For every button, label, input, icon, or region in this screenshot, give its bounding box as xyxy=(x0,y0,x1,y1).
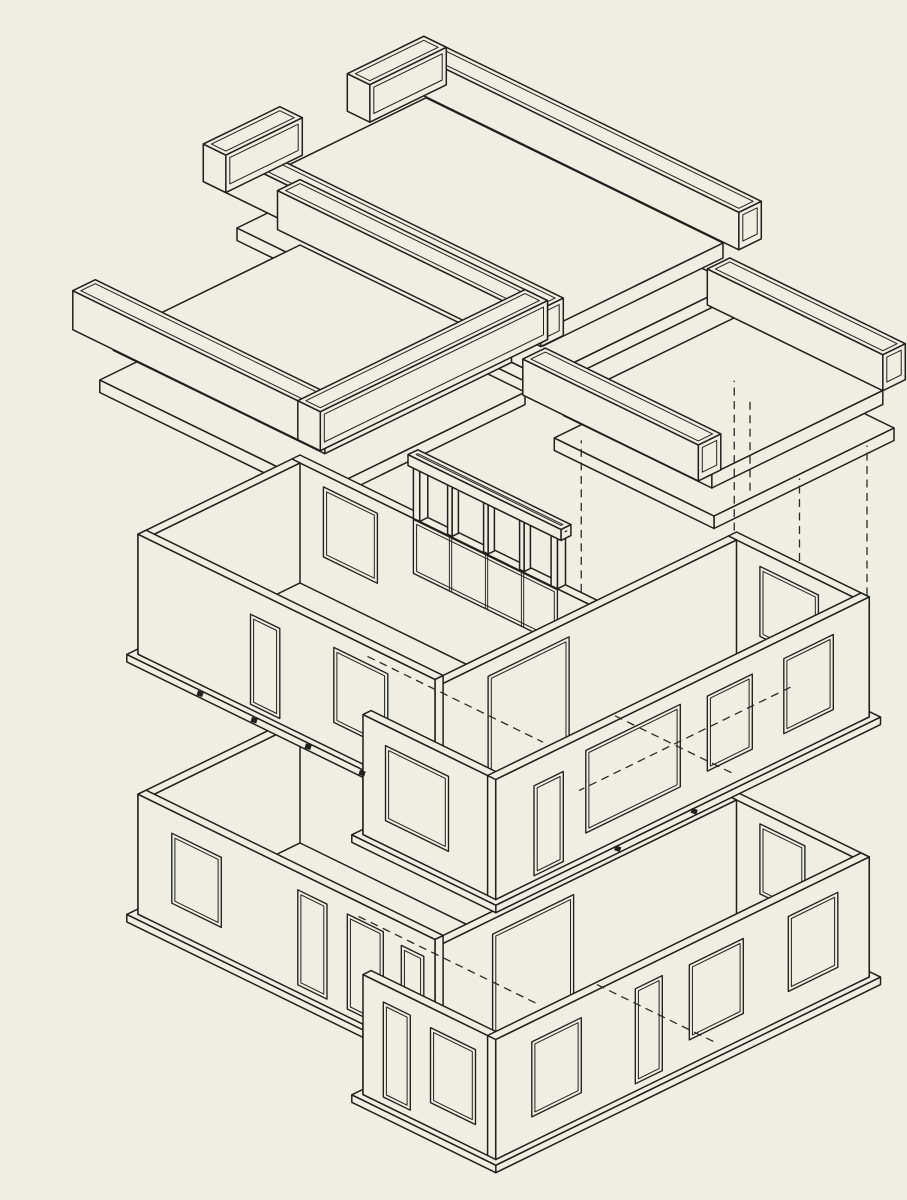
box-face-side xyxy=(520,517,525,572)
exploded-axonometric-drawing xyxy=(0,0,907,1200)
window-opening xyxy=(383,1002,410,1110)
box-face-side xyxy=(488,1036,496,1160)
drawing-page xyxy=(0,0,907,1200)
window-opening xyxy=(298,890,327,999)
window-opening xyxy=(635,976,662,1084)
box-face-side xyxy=(484,499,489,554)
box-face-side xyxy=(488,776,496,900)
box-face-side xyxy=(448,482,453,537)
